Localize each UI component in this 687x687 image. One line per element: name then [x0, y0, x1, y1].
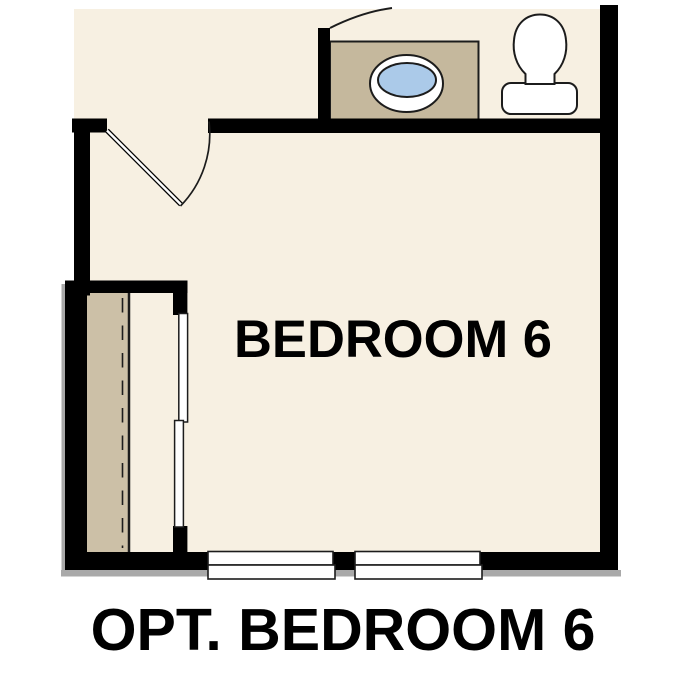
closet-opening-top-stub [173, 293, 187, 315]
closet-left-wall [65, 281, 87, 571]
bypass-door-panel-left [175, 421, 184, 528]
bath-bedroom-divider-wall [208, 119, 618, 134]
bottom-wall-shadow [61, 570, 621, 577]
left-wall-shadow [62, 284, 66, 576]
toilet-tank [502, 83, 577, 114]
window-2-outer [355, 552, 480, 566]
window-2-sill [355, 565, 482, 579]
sink-basin [378, 63, 436, 97]
floor-plan-drawing: BEDROOM 6 OPT. BEDROOM 6 [0, 0, 687, 687]
bedroom-label: BEDROOM 6 [234, 310, 552, 369]
window-1-sill [208, 565, 335, 579]
bypass-door-panel-right [179, 314, 188, 423]
right-wall [600, 5, 618, 570]
closet-opening-bottom-stub [173, 526, 187, 552]
floor-plan-page: BEDROOM 6 OPT. BEDROOM 6 [0, 0, 687, 687]
plan-caption: OPT. BEDROOM 6 [91, 597, 596, 663]
window-1-outer [208, 552, 333, 566]
bottom-wall [65, 552, 618, 570]
left-upper-wall [74, 119, 90, 296]
bathroom-left-wall [318, 28, 330, 120]
closet-top-wall [74, 281, 188, 294]
